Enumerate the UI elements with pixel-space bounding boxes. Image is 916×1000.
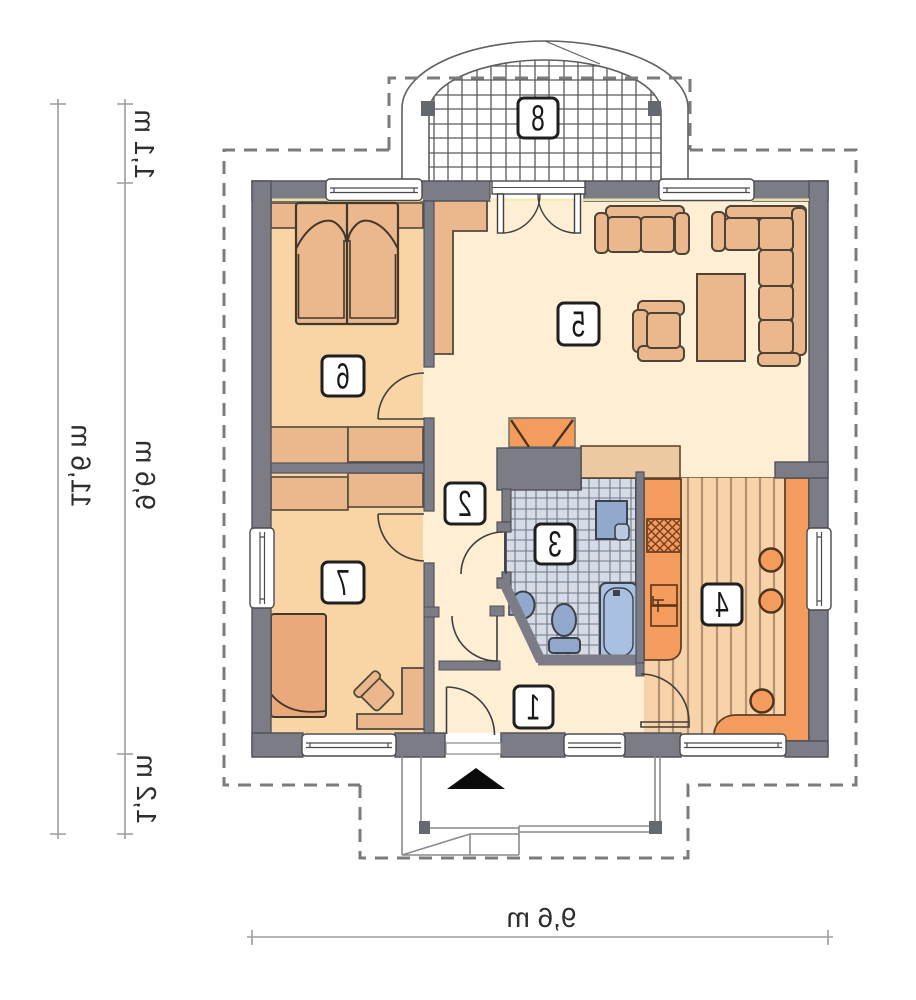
svg-text:7: 7	[336, 562, 350, 603]
svg-text:3: 3	[548, 524, 562, 565]
svg-text:2: 2	[458, 483, 472, 524]
svg-text:1,1 m: 1,1 m	[129, 109, 160, 179]
svg-text:9,6 m: 9,6 m	[506, 902, 576, 933]
svg-text:11,6 m: 11,6 m	[66, 424, 97, 508]
svg-text:1: 1	[527, 687, 541, 728]
svg-text:4: 4	[715, 584, 729, 625]
svg-text:1,2 m: 1,2 m	[131, 754, 162, 824]
svg-text:9,6 m: 9,6 m	[130, 440, 161, 510]
svg-text:8: 8	[531, 98, 545, 139]
svg-text:5: 5	[572, 304, 586, 345]
svg-text:6: 6	[336, 356, 350, 397]
